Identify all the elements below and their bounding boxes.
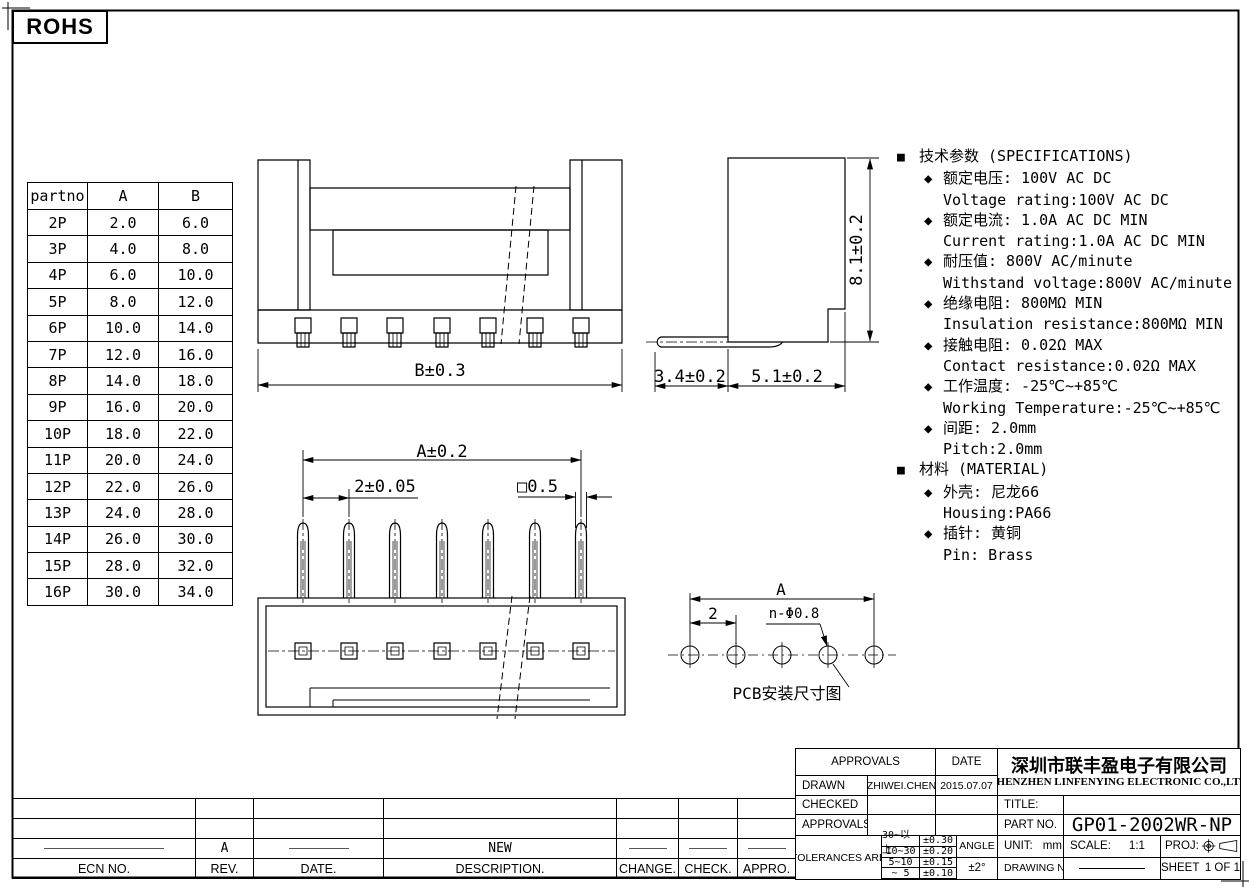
dim-b-cell: 22.0 [159, 421, 233, 447]
drawing-no-value [1064, 858, 1161, 880]
dim-pin-square: □0.5 [505, 478, 570, 497]
part-no-label: PART NO. [998, 815, 1064, 836]
revision-empty-row [13, 799, 796, 819]
dim-a-cell: 20.0 [88, 447, 159, 473]
dim-front-width: B±0.3 [390, 362, 490, 381]
dim-top-width: A±0.2 [392, 443, 492, 462]
spec-text-cn: 接触电阻: 0.02Ω MAX [943, 336, 1102, 354]
material-heading-text: 材料 (MATERIAL) [919, 460, 1048, 478]
spec-text-cn: 间距: 2.0mm [943, 419, 1036, 437]
dim-b-cell: 24.0 [159, 447, 233, 473]
material-text-en: Housing:PA66 [897, 503, 1245, 523]
dim-b-cell: 30.0 [159, 526, 233, 552]
diamond-bullet-icon: ◆ [924, 211, 943, 231]
dim-a-cell: 30.0 [88, 579, 159, 605]
scale-cell: SCALE:1:1 [1064, 836, 1161, 858]
material-item: ◆外壳: 尼龙66 Housing:PA66 [897, 482, 1245, 524]
spec-item: ◆绝缘电阻: 800MΩ MIN Insulation resistance:8… [897, 293, 1245, 335]
pcb-dim-width: A [766, 581, 796, 599]
dim-pin-length: 3.4±0.2 [654, 368, 726, 387]
square-bullet-icon: ■ [897, 461, 919, 481]
part-table-row: 2P 2.0 6.0 [28, 210, 233, 236]
pcb-dim-hole: n-Φ0.8 [758, 607, 830, 622]
spec-text-en: Pitch:2.0mm [897, 439, 1245, 459]
spec-section-heading: ■技术参数 (SPECIFICATIONS) [897, 146, 1245, 168]
angle-label: ANGLE [957, 836, 998, 858]
diamond-bullet-icon: ◆ [924, 483, 943, 503]
dim-b-cell: 26.0 [159, 473, 233, 499]
dim-b-cell: 28.0 [159, 500, 233, 526]
scale-label: SCALE: [1070, 840, 1111, 852]
partno-cell: 5P [28, 289, 88, 315]
dim-a-cell: 16.0 [88, 394, 159, 420]
part-table-row: 13P 24.0 28.0 [28, 500, 233, 526]
part-table-row: 9P 16.0 20.0 [28, 394, 233, 420]
spec-text-en: Contact resistance:0.02Ω MAX [897, 356, 1245, 376]
tolerance-range: 10~30 [882, 847, 920, 858]
partno-cell: 6P [28, 315, 88, 341]
header-ecn-no: ECN NO. [13, 859, 196, 879]
front-view-drawing [258, 160, 622, 347]
partno-cell: 10P [28, 421, 88, 447]
column-header-a: A [88, 183, 159, 210]
scale-value: 1:1 [1129, 840, 1145, 852]
revision-table: A NEW ECN NO. REV. DATE. DESCRIPTION. CH… [12, 798, 796, 879]
unit-label: UNIT: [1004, 840, 1033, 852]
tolerance-range: 5~10 [882, 858, 920, 869]
header-check: CHECK. [679, 859, 738, 879]
column-header-b: B [159, 183, 233, 210]
part-no-value: GP01-2002WR-NP [1064, 815, 1240, 836]
dim-a-cell: 24.0 [88, 500, 159, 526]
dim-a-cell: 4.0 [88, 236, 159, 262]
dim-a-cell: 2.0 [88, 210, 159, 236]
partno-cell: 3P [28, 236, 88, 262]
header-description: DESCRIPTION. [384, 859, 617, 879]
pcb-layout-drawing [668, 642, 896, 668]
sheet-value: 1 OF 1 [1205, 862, 1240, 874]
partno-cell: 4P [28, 262, 88, 288]
partno-cell: 9P [28, 394, 88, 420]
material-text-cn: 插针: 黄铜 [943, 524, 1021, 542]
checked-label: CHECKED [796, 796, 868, 815]
blank-line [1079, 868, 1145, 869]
angle-tolerance: ±2° [957, 858, 998, 880]
partno-cell: 8P [28, 368, 88, 394]
part-table-row: 3P 4.0 8.0 [28, 236, 233, 262]
dim-b-cell: 20.0 [159, 394, 233, 420]
blank-line [689, 848, 727, 849]
pcb-caption: PCB安装尺寸图 [702, 685, 872, 703]
dim-a-cell: 28.0 [88, 553, 159, 579]
part-table-row: 14P 26.0 30.0 [28, 526, 233, 552]
header-date: DATE. [254, 859, 384, 879]
dim-a-cell: 10.0 [88, 315, 159, 341]
title-block: APPROVALS DATE DRAWN ZHIWEI.CHEN 2015.07… [795, 748, 1241, 880]
header-appro: APPRO. [738, 859, 796, 879]
dim-b-cell: 6.0 [159, 210, 233, 236]
approvals-header: APPROVALS [796, 749, 936, 776]
tolerance-value: ±0.20 [920, 847, 957, 858]
third-angle-projection-icon [1201, 838, 1240, 854]
spec-item: ◆额定电压: 100V AC DC Voltage rating:100V AC… [897, 168, 1245, 210]
diamond-bullet-icon: ◆ [924, 336, 943, 356]
partno-cell: 7P [28, 341, 88, 367]
diamond-bullet-icon: ◆ [924, 294, 943, 314]
drawn-label: DRAWN [796, 776, 868, 796]
checked-name [868, 796, 936, 815]
column-header-partno: partno [28, 183, 88, 210]
dim-a-cell: 14.0 [88, 368, 159, 394]
diamond-bullet-icon: ◆ [924, 419, 943, 439]
spec-text-cn: 额定电流: 1.0A AC DC MIN [943, 211, 1148, 229]
material-text-cn: 外壳: 尼龙66 [943, 483, 1039, 501]
tolerance-value: ±0.15 [920, 858, 957, 869]
material-item: ◆插针: 黄铜 Pin: Brass [897, 523, 1245, 565]
partno-cell: 11P [28, 447, 88, 473]
revision-description-value: NEW [384, 839, 617, 859]
top-view-drawing [258, 519, 625, 719]
partno-cell: 12P [28, 473, 88, 499]
partno-cell: 13P [28, 500, 88, 526]
spec-text-cn: 绝缘电阻: 800MΩ MIN [943, 294, 1102, 312]
pcb-dim-pitch: 2 [700, 605, 726, 623]
checked-date [936, 796, 998, 815]
partno-cell: 15P [28, 553, 88, 579]
dim-b-cell: 8.0 [159, 236, 233, 262]
dim-a-cell: 12.0 [88, 341, 159, 367]
part-table-row: 8P 14.0 18.0 [28, 368, 233, 394]
drawn-date: 2015.07.07 [936, 776, 998, 796]
approved-label: APPROVALS [796, 815, 868, 836]
spec-text-cn: 额定电压: 100V AC DC [943, 169, 1111, 187]
revision-entry-row: A NEW [13, 839, 796, 859]
tolerances-label: TOLERANCES ARE [796, 836, 882, 879]
spec-text-cn: 工作温度: -25℃~+85℃ [943, 377, 1118, 395]
spec-text-en: Voltage rating:100V AC DC [897, 190, 1245, 210]
diamond-bullet-icon: ◆ [924, 252, 943, 272]
revision-rev-value: A [196, 839, 254, 859]
title-value [1064, 796, 1240, 815]
engineering-drawing-page: { "rohs": { "label": "ROHS" }, "icons": … [0, 0, 1251, 889]
part-table-row: 15P 28.0 32.0 [28, 553, 233, 579]
spec-item: ◆耐压值: 800V AC/minute Withstand voltage:8… [897, 251, 1245, 293]
part-table-header-row: partno A B [28, 183, 233, 210]
part-table-row: 7P 12.0 16.0 [28, 341, 233, 367]
approved-date [936, 815, 998, 836]
dim-b-cell: 12.0 [159, 289, 233, 315]
tolerance-range: 30~以上 [882, 836, 920, 847]
material-section-heading: ■材料 (MATERIAL) [897, 459, 1245, 481]
specifications-panel: ■技术参数 (SPECIFICATIONS) ◆额定电压: 100V AC DC… [897, 146, 1245, 565]
sheet-cell: SHEET1 OF 1 [1161, 858, 1240, 880]
blank-line [748, 848, 786, 849]
tolerance-row: 10~30 ±0.20 [882, 847, 957, 858]
rohs-badge: ROHS [12, 10, 108, 44]
part-table-row: 6P 10.0 14.0 [28, 315, 233, 341]
revision-header-row: ECN NO. REV. DATE. DESCRIPTION. CHANGE. … [13, 859, 796, 879]
tolerance-table: 30~以上 ±0.30 10~30 ±0.20 5~10 ±0.15 ~ 5 ±… [882, 836, 957, 879]
spec-text-en: Insulation resistance:800MΩ MIN [897, 314, 1245, 334]
drawing-no-label: DRAWING NO. [998, 858, 1064, 880]
partno-cell: 16P [28, 579, 88, 605]
revision-empty-row [13, 819, 796, 839]
side-view-drawing [646, 158, 845, 347]
diamond-bullet-icon: ◆ [924, 524, 943, 544]
tolerance-value: ±0.10 [920, 868, 957, 879]
spec-item: ◆额定电流: 1.0A AC DC MIN Current rating:1.0… [897, 210, 1245, 252]
rohs-label: ROHS [26, 14, 94, 40]
unit-cell: UNIT:mm [998, 836, 1064, 858]
dim-b-cell: 16.0 [159, 341, 233, 367]
part-table-row: 4P 6.0 10.0 [28, 262, 233, 288]
dim-b-cell: 18.0 [159, 368, 233, 394]
part-number-table: partno A B 2P 2.0 6.0 3P 4.0 8.0 4P 6.0 … [27, 182, 233, 606]
dim-a-cell: 8.0 [88, 289, 159, 315]
spec-item: ◆间距: 2.0mm Pitch:2.0mm [897, 418, 1245, 460]
tolerance-value: ±0.30 [920, 836, 957, 847]
blank-line [44, 848, 164, 849]
square-bullet-icon: ■ [897, 148, 919, 168]
dim-a-cell: 18.0 [88, 421, 159, 447]
header-rev: REV. [196, 859, 254, 879]
dim-body-depth: 5.1±0.2 [751, 368, 823, 387]
tolerance-range: ~ 5 [882, 868, 920, 879]
spec-text-en: Working Temperature:-25℃~+85℃ [897, 398, 1245, 418]
unit-value: mm [1043, 840, 1062, 852]
side-view-dimension-lines [655, 158, 879, 392]
spec-heading-text: 技术参数 (SPECIFICATIONS) [919, 147, 1133, 165]
spec-text-cn: 耐压值: 800V AC/minute [943, 252, 1133, 270]
part-table-row: 10P 18.0 22.0 [28, 421, 233, 447]
proj-label: PROJ: [1165, 840, 1199, 852]
dim-side-height: 8.1±0.2 [848, 205, 868, 295]
dim-b-cell: 14.0 [159, 315, 233, 341]
drawn-name: ZHIWEI.CHEN [868, 776, 936, 796]
spec-item: ◆接触电阻: 0.02Ω MAX Contact resistance:0.02… [897, 335, 1245, 377]
tolerance-row: ~ 5 ±0.10 [882, 868, 957, 879]
material-text-en: Pin: Brass [897, 545, 1245, 565]
partno-cell: 2P [28, 210, 88, 236]
dim-a-cell: 22.0 [88, 473, 159, 499]
part-table-row: 16P 30.0 34.0 [28, 579, 233, 605]
dim-b-cell: 34.0 [159, 579, 233, 605]
dim-a-cell: 26.0 [88, 526, 159, 552]
part-table-row: 5P 8.0 12.0 [28, 289, 233, 315]
blank-line [289, 848, 349, 849]
diamond-bullet-icon: ◆ [924, 169, 943, 189]
company-cell: 深圳市联丰盈电子有限公司 SHENZHEN LINFENYING ELECTRO… [998, 749, 1240, 796]
company-name-cn: 深圳市联丰盈电子有限公司 [1011, 756, 1227, 776]
tolerance-row: 30~以上 ±0.30 [882, 836, 957, 847]
header-change: CHANGE. [617, 859, 679, 879]
dim-b-cell: 32.0 [159, 553, 233, 579]
part-table-row: 11P 20.0 24.0 [28, 447, 233, 473]
dim-pitch: 2±0.05 [345, 478, 425, 497]
partno-cell: 14P [28, 526, 88, 552]
spec-item: ◆工作温度: -25℃~+85℃ Working Temperature:-25… [897, 376, 1245, 418]
date-header: DATE [936, 749, 998, 776]
company-name-en: SHENZHEN LINFENYING ELECTRONIC CO.,LTD [998, 776, 1240, 789]
dim-b-cell: 10.0 [159, 262, 233, 288]
tolerance-row: 5~10 ±0.15 [882, 858, 957, 869]
spec-text-en: Withstand voltage:800V AC/minute [897, 273, 1245, 293]
part-table-row: 12P 22.0 26.0 [28, 473, 233, 499]
dim-a-cell: 6.0 [88, 262, 159, 288]
blank-line [629, 848, 667, 849]
sheet-label: SHEET [1161, 862, 1199, 874]
spec-text-en: Current rating:1.0A AC DC MIN [897, 231, 1245, 251]
proj-cell: PROJ: [1161, 836, 1240, 858]
title-label: TITLE: [998, 796, 1064, 815]
diamond-bullet-icon: ◆ [924, 377, 943, 397]
